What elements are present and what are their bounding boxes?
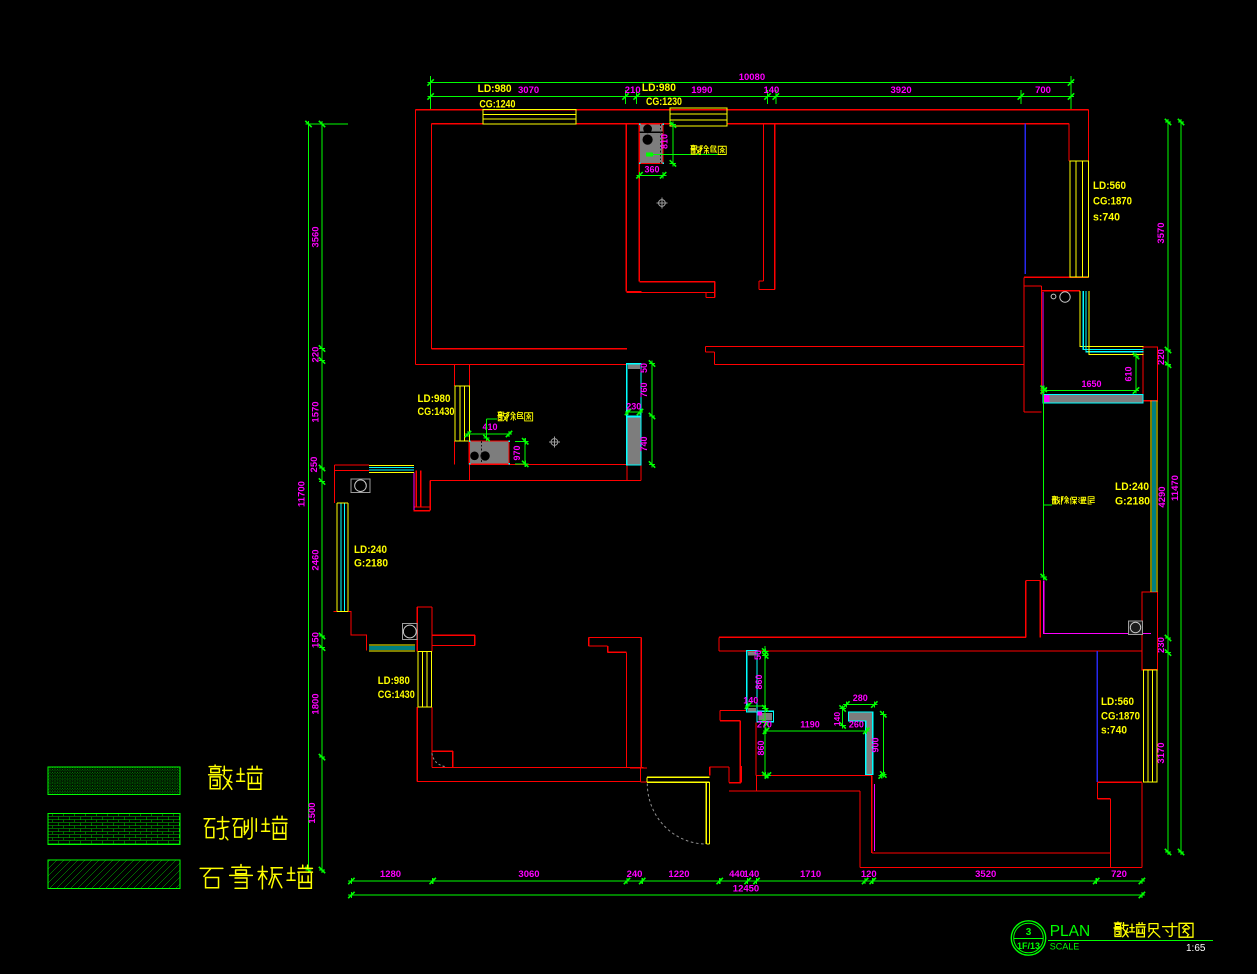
- svg-text:CG:1870: CG:1870: [1101, 711, 1140, 723]
- svg-text:s:740: s:740: [1093, 212, 1120, 224]
- svg-text:210: 210: [625, 85, 641, 96]
- svg-text:140: 140: [743, 869, 759, 880]
- svg-text:CG:1430: CG:1430: [378, 689, 415, 701]
- svg-text:11700: 11700: [297, 481, 308, 507]
- svg-text:610: 610: [1124, 366, 1134, 381]
- svg-text:12450: 12450: [733, 884, 759, 895]
- svg-text:G:2180: G:2180: [354, 558, 388, 570]
- svg-text:2460: 2460: [311, 549, 322, 570]
- svg-text:3920: 3920: [891, 85, 912, 96]
- svg-text:700: 700: [1035, 85, 1051, 96]
- svg-text:140: 140: [763, 85, 779, 96]
- svg-text:4290: 4290: [1157, 486, 1168, 507]
- svg-text:s:740: s:740: [1101, 725, 1127, 737]
- svg-text:LD:560: LD:560: [1101, 696, 1134, 708]
- svg-text:810: 810: [660, 134, 670, 149]
- svg-text:3570: 3570: [1156, 222, 1167, 243]
- svg-text:1190: 1190: [800, 720, 820, 730]
- svg-text:CG:1230: CG:1230: [646, 96, 682, 108]
- svg-text:LD:980: LD:980: [378, 675, 410, 687]
- svg-text:PLAN: PLAN: [1050, 923, 1091, 940]
- svg-text:1800: 1800: [311, 693, 322, 714]
- svg-text:240: 240: [627, 869, 643, 880]
- svg-text:CG:1240: CG:1240: [479, 99, 515, 111]
- svg-text:970: 970: [512, 445, 522, 460]
- svg-text:360: 360: [644, 164, 659, 174]
- svg-text:1990: 1990: [691, 85, 712, 96]
- svg-text:1650: 1650: [1081, 379, 1101, 389]
- svg-text:860: 860: [756, 740, 766, 755]
- svg-text:LD:980: LD:980: [642, 82, 676, 94]
- svg-text:260: 260: [849, 719, 864, 729]
- svg-text:150: 150: [311, 632, 322, 648]
- svg-text:LD:560: LD:560: [1093, 180, 1126, 192]
- svg-text:1710: 1710: [800, 869, 821, 880]
- svg-text:1500: 1500: [307, 802, 318, 823]
- svg-text:230: 230: [626, 402, 641, 412]
- svg-text:CG:1430: CG:1430: [418, 406, 455, 418]
- svg-text:11470: 11470: [1170, 475, 1181, 501]
- svg-text:410: 410: [482, 422, 497, 432]
- svg-text:1F/13: 1F/13: [1017, 941, 1040, 951]
- svg-text:3560: 3560: [311, 226, 322, 247]
- svg-text:140: 140: [832, 712, 842, 726]
- svg-text:280: 280: [853, 693, 868, 703]
- svg-text:LD:980: LD:980: [478, 83, 512, 95]
- svg-text:G:2180: G:2180: [1115, 496, 1150, 508]
- svg-text:120: 120: [861, 869, 877, 880]
- svg-text:3520: 3520: [975, 869, 996, 880]
- svg-text:50: 50: [753, 650, 763, 660]
- svg-text:860: 860: [754, 674, 764, 689]
- svg-text:760: 760: [639, 382, 649, 397]
- svg-text:740: 740: [639, 436, 649, 451]
- svg-text:10080: 10080: [739, 72, 765, 83]
- svg-text:50: 50: [639, 363, 649, 373]
- svg-text:LD:240: LD:240: [354, 544, 387, 556]
- svg-text:1570: 1570: [311, 401, 322, 422]
- svg-text:1220: 1220: [668, 869, 689, 880]
- svg-text:SCALE: SCALE: [1050, 942, 1080, 952]
- svg-text:900: 900: [871, 737, 881, 752]
- svg-text:LD:240: LD:240: [1115, 481, 1149, 493]
- svg-text:LD:980: LD:980: [418, 393, 451, 405]
- svg-text:270: 270: [757, 720, 772, 730]
- svg-text:1280: 1280: [380, 869, 401, 880]
- svg-text:250: 250: [309, 457, 320, 473]
- svg-text:CG:1870: CG:1870: [1093, 196, 1132, 208]
- svg-text:3070: 3070: [518, 85, 539, 96]
- svg-text:220: 220: [311, 347, 322, 363]
- svg-text:3060: 3060: [518, 869, 539, 880]
- svg-text:1:65: 1:65: [1186, 943, 1206, 954]
- svg-text:720: 720: [1111, 869, 1127, 880]
- svg-text:3: 3: [1026, 927, 1032, 938]
- svg-text:3170: 3170: [1156, 742, 1167, 763]
